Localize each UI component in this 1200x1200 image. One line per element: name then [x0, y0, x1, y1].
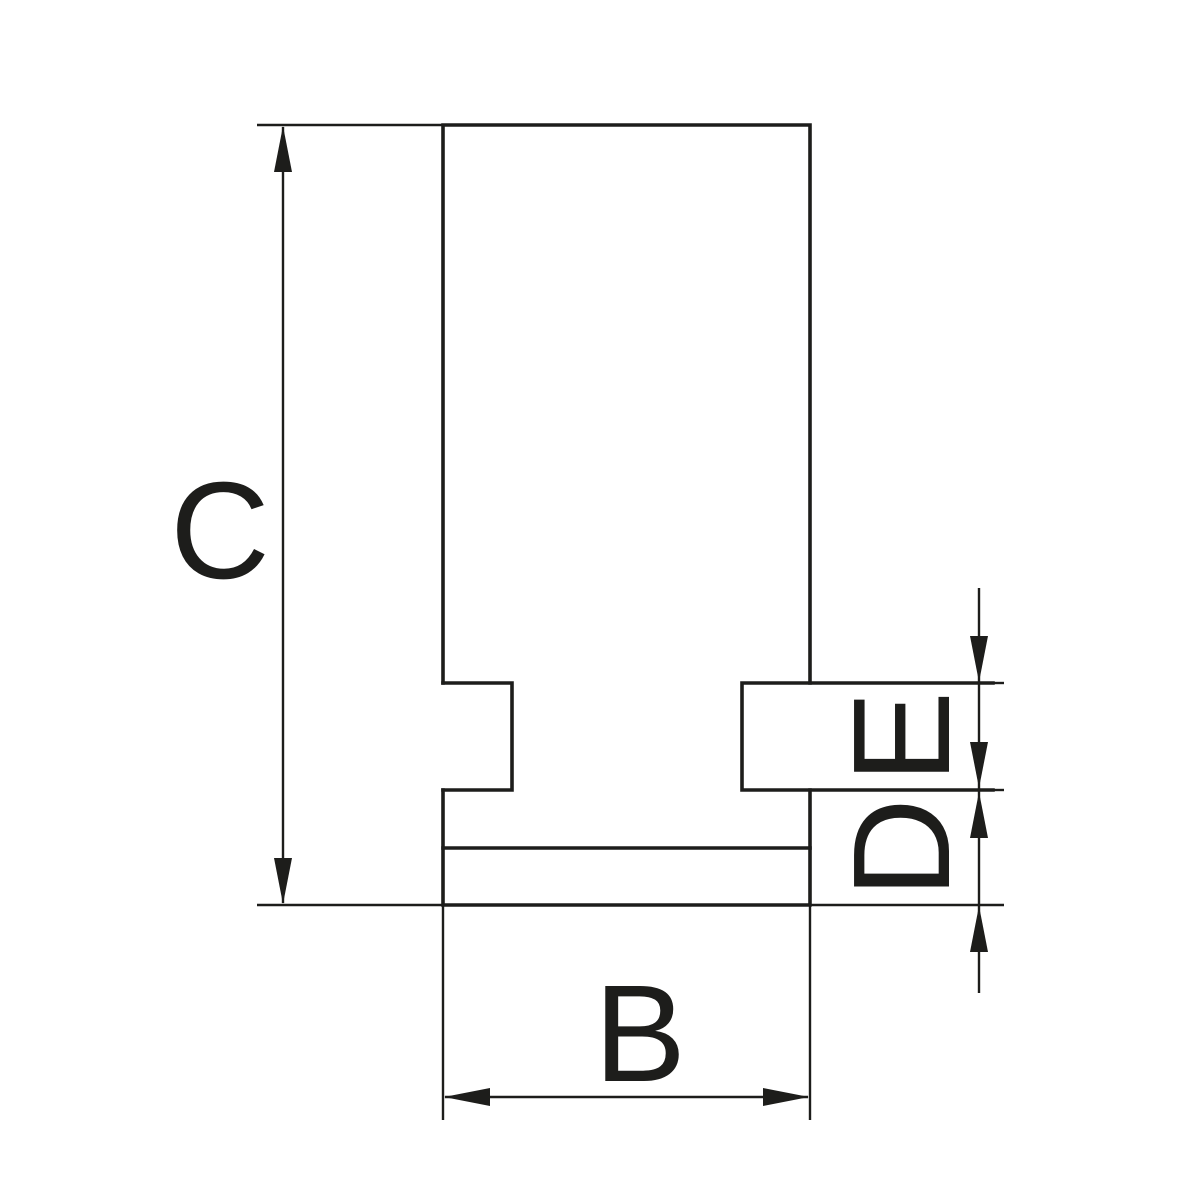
dimension-c-label: C	[170, 454, 270, 608]
dimension-c: C	[170, 126, 292, 904]
chuck-jaw-dimension-drawing: C B E D	[0, 0, 1200, 1200]
dimension-c-arrow-up	[274, 126, 292, 172]
dimension-c-arrow-down	[274, 858, 292, 904]
dimension-e-label: E	[825, 691, 979, 783]
part-left-groove-outline	[443, 683, 512, 790]
part-outline	[443, 125, 993, 905]
dimension-b: B	[444, 957, 809, 1111]
dimension-b-arrow-left	[444, 1088, 490, 1106]
part-upper-body-outline	[443, 125, 810, 683]
dimension-b-label: B	[594, 957, 686, 1111]
dimension-e-arrow-top	[970, 636, 988, 682]
technical-drawing-canvas: C B E D	[0, 0, 1200, 1200]
dimension-d-label: D	[825, 798, 979, 898]
dimension-d-arrow-bottom	[970, 906, 988, 952]
dimension-b-arrow-right	[763, 1088, 809, 1106]
